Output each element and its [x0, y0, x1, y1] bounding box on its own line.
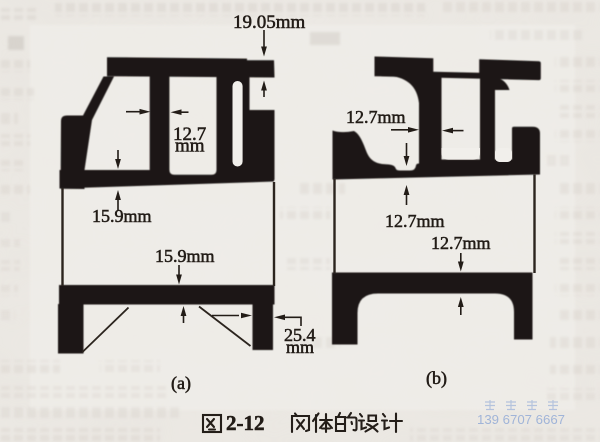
- svg-text:mm: mm: [286, 337, 314, 357]
- svg-text:mm: mm: [175, 136, 205, 157]
- svg-text:12.7mm: 12.7mm: [385, 211, 445, 231]
- svg-text:12.7mm: 12.7mm: [431, 233, 491, 253]
- svg-text:15.9mm: 15.9mm: [155, 246, 215, 266]
- svg-text:139 6707 6667: 139 6707 6667: [477, 412, 565, 427]
- svg-text:(a): (a): [171, 373, 191, 394]
- svg-text:(b): (b): [426, 368, 447, 389]
- svg-text:2-12: 2-12: [226, 411, 265, 435]
- svg-text:19.05mm: 19.05mm: [233, 12, 306, 33]
- svg-text:15.9mm: 15.9mm: [92, 206, 152, 226]
- svg-text:12.7mm: 12.7mm: [346, 107, 406, 127]
